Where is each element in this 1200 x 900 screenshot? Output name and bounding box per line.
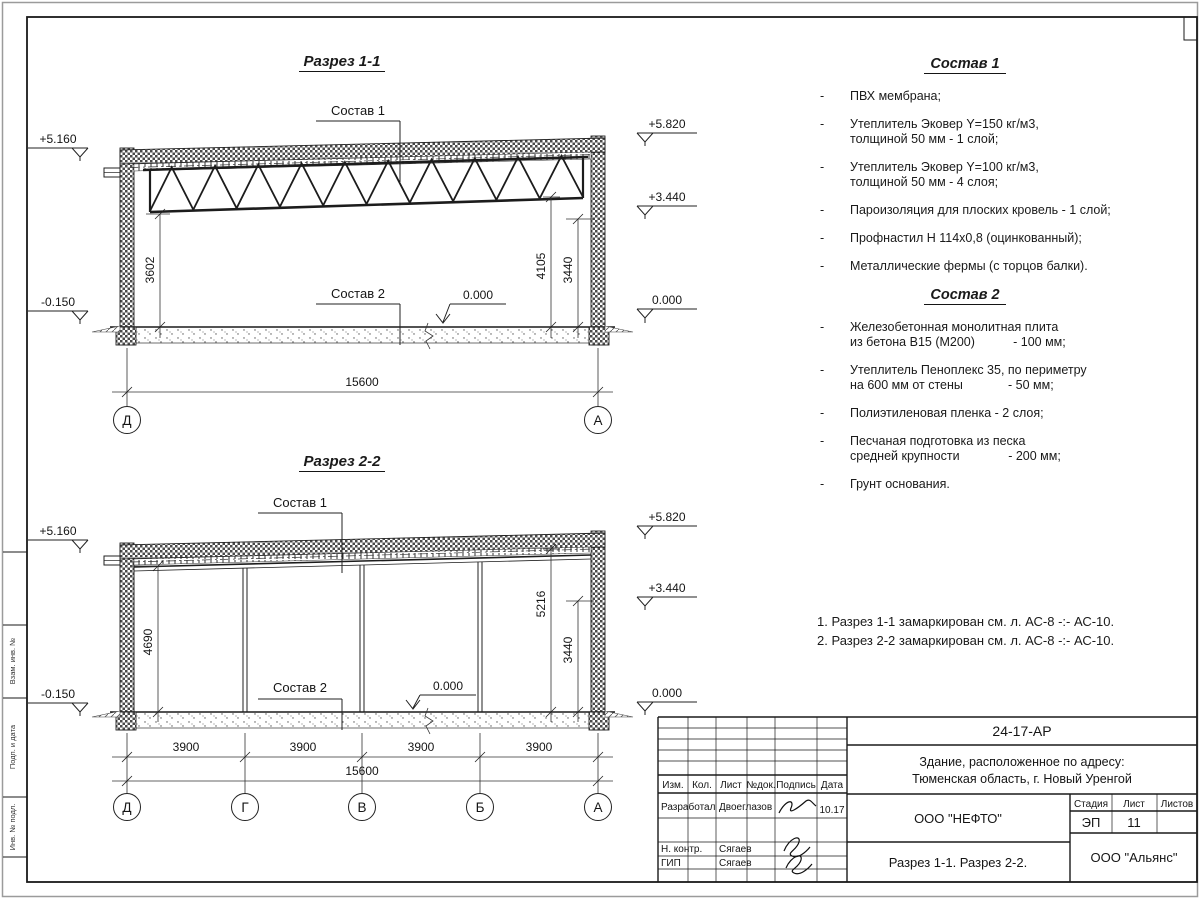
contractor: ООО "Альянс" — [1091, 850, 1178, 865]
floor-slab — [120, 327, 605, 343]
row1-date: 10.17 — [819, 805, 844, 816]
composition-1-heading: Состав 1 — [806, 56, 1124, 72]
section-2-2-drawing: Состав 1 Состав 2 +5.160 -0.150 +5.820 +… — [28, 495, 697, 821]
col-podpis: Подпись — [776, 780, 816, 791]
composition2-label: Состав 2 — [331, 286, 385, 301]
vertical-dimensions: 4690 5216 3440 — [132, 544, 594, 722]
object-name-line1: Здание, расположенное по адресу: — [919, 755, 1124, 769]
row2-name: Сягаев — [719, 844, 752, 855]
list-item: -Утеплитель Пеноплекс 35, по периметру н… — [806, 363, 1124, 393]
list-item: -Металлические фермы (с торцов балки). — [806, 259, 1124, 274]
dim-3440: 3440 — [561, 256, 575, 283]
side-label-vzam: Взам. инв. № — [8, 638, 17, 684]
side-label-podp: Подп. и дата — [8, 724, 17, 769]
wall-left — [120, 543, 134, 730]
signatures — [779, 800, 816, 874]
composition-2-list: Состав 2 -Железобетонная монолитная плит… — [806, 287, 1124, 505]
list-item: -Профнастил Н 114х0,8 (оцинкованный); — [806, 231, 1124, 246]
row2-role: Н. контр. — [661, 844, 702, 855]
list-item: -Утеплитель Эковер Y=150 кг/м3, толщиной… — [806, 117, 1124, 147]
col-data: Дата — [821, 780, 844, 791]
elev-right-bottom: 0.000 — [652, 686, 682, 700]
col-list: Лист — [720, 780, 742, 791]
col-ndoc: №док. — [746, 780, 775, 791]
axis-bubble-a: А — [593, 800, 602, 815]
composition1-label: Состав 1 — [273, 495, 327, 510]
section-1-1-drawing: Состав 1 Состав 2 +5.160 -0.150 +5.820 +… — [28, 103, 697, 434]
columns — [134, 553, 591, 712]
list-item: -ПВХ мембрана; — [806, 89, 1124, 104]
wall-left — [120, 148, 134, 345]
bottom-dimensions: 3900 3900 3900 3900 15600 Д Г В Б А — [112, 733, 613, 821]
signature-2 — [784, 838, 810, 857]
sheets-label: Листов — [1161, 799, 1194, 810]
elev-floor: 0.000 — [433, 679, 463, 693]
stage-label: Стадия — [1074, 799, 1108, 810]
wall-right — [591, 531, 605, 730]
list-item: -Грунт основания. — [806, 477, 1124, 492]
elev-right-top: +5.820 — [648, 510, 685, 524]
composition-1-list: Состав 1 -ПВХ мембрана; -Утеплитель Эков… — [806, 56, 1124, 287]
notes: 1. Разрез 1-1 замаркирован см. л. АС-8 -… — [817, 612, 1114, 650]
dim-5216: 5216 — [534, 590, 548, 617]
corner-box — [1184, 17, 1197, 40]
col-izm: Изм. — [662, 780, 683, 791]
composition1-label: Состав 1 — [331, 103, 385, 118]
dim-4105: 4105 — [534, 252, 548, 279]
elev-left-top: +5.160 — [39, 132, 76, 146]
elev-right-bottom: 0.000 — [652, 293, 682, 307]
col-kol: Кол. — [692, 780, 712, 791]
composition1-leader: Состав 1 — [316, 103, 400, 182]
axis-bubble-d: Д — [122, 413, 131, 428]
elev-right-mid: +3.440 — [648, 581, 685, 595]
row3-role: ГИП — [661, 858, 681, 869]
document-code: 24-17-АР — [992, 723, 1051, 739]
composition2-label: Состав 2 — [273, 680, 327, 695]
object-name-line2: Тюменская область, г. Новый Уренгой — [912, 772, 1132, 786]
dim-span-2: 3900 — [290, 740, 317, 754]
dim-4690: 4690 — [141, 628, 155, 655]
sheet-value: 11 — [1127, 815, 1141, 830]
axis-bubble-d: Д — [122, 800, 131, 815]
dim-span-1: 3900 — [173, 740, 200, 754]
organization: ООО "НЕФТО" — [914, 811, 1002, 826]
list-item: -Утеплитель Эковер Y=100 кг/м3, толщиной… — [806, 160, 1124, 190]
axis-bubble-g: Г — [241, 800, 249, 815]
section-2-2-title: Разрез 2-2 — [282, 453, 402, 470]
bottom-dimension: 15600 Д А — [112, 348, 613, 434]
composition-2-heading: Состав 2 — [806, 287, 1124, 303]
row3-name: Сягаев — [719, 858, 752, 869]
signature-3 — [786, 856, 812, 874]
drawing-sheet: Взам. инв. № Подп. и дата Инв. № подл. — [0, 0, 1200, 900]
row1-role: Разработал — [661, 801, 716, 813]
list-item: -Песчаная подготовка из песка средней кр… — [806, 434, 1124, 464]
elev-left-bottom: -0.150 — [41, 687, 75, 701]
sheet-label: Лист — [1123, 799, 1145, 810]
dim-15600: 15600 — [345, 375, 379, 389]
dim-3440: 3440 — [561, 636, 575, 663]
elev-floor: 0.000 — [463, 288, 493, 302]
list-item: -Полиэтиленовая пленка - 2 слоя; — [806, 406, 1124, 421]
note-line-2: 2. Разрез 2-2 замаркирован см. л. АС-8 -… — [817, 631, 1114, 650]
floor-slab — [120, 712, 605, 728]
signature-1 — [779, 800, 816, 813]
elev-left-top: +5.160 — [39, 524, 76, 538]
row1-name: Двоеглазов — [719, 802, 772, 813]
axis-bubble-v: В — [357, 800, 366, 815]
section-1-1-title: Разрез 1-1 — [282, 53, 402, 70]
elev-left-bottom: -0.150 — [41, 295, 75, 309]
drawing-title: Разрез 1-1. Разрез 2-2. — [889, 855, 1027, 870]
dim-span-3: 3900 — [408, 740, 435, 754]
wall-right — [591, 136, 605, 345]
axis-bubble-a: А — [593, 413, 602, 428]
note-line-1: 1. Разрез 1-1 замаркирован см. л. АС-8 -… — [817, 612, 1114, 631]
elev-right-mid: +3.440 — [648, 190, 685, 204]
vertical-dimensions: 3602 4105 3440 — [143, 192, 594, 338]
dim-span-4: 3900 — [526, 740, 553, 754]
axis-bubble-b: Б — [476, 800, 485, 815]
stage-value: ЭП — [1082, 815, 1101, 830]
side-label-inv: Инв. № подл. — [8, 804, 17, 851]
list-item: -Пароизоляция для плоских кровель - 1 сл… — [806, 203, 1124, 218]
dim-15600: 15600 — [345, 764, 379, 778]
list-item: -Железобетонная монолитная плита из бето… — [806, 320, 1124, 350]
elev-right-top: +5.820 — [648, 117, 685, 131]
dim-3602: 3602 — [143, 256, 157, 283]
title-block: Изм. Кол. Лист №док. Подпись Дата Разраб… — [658, 717, 1197, 882]
